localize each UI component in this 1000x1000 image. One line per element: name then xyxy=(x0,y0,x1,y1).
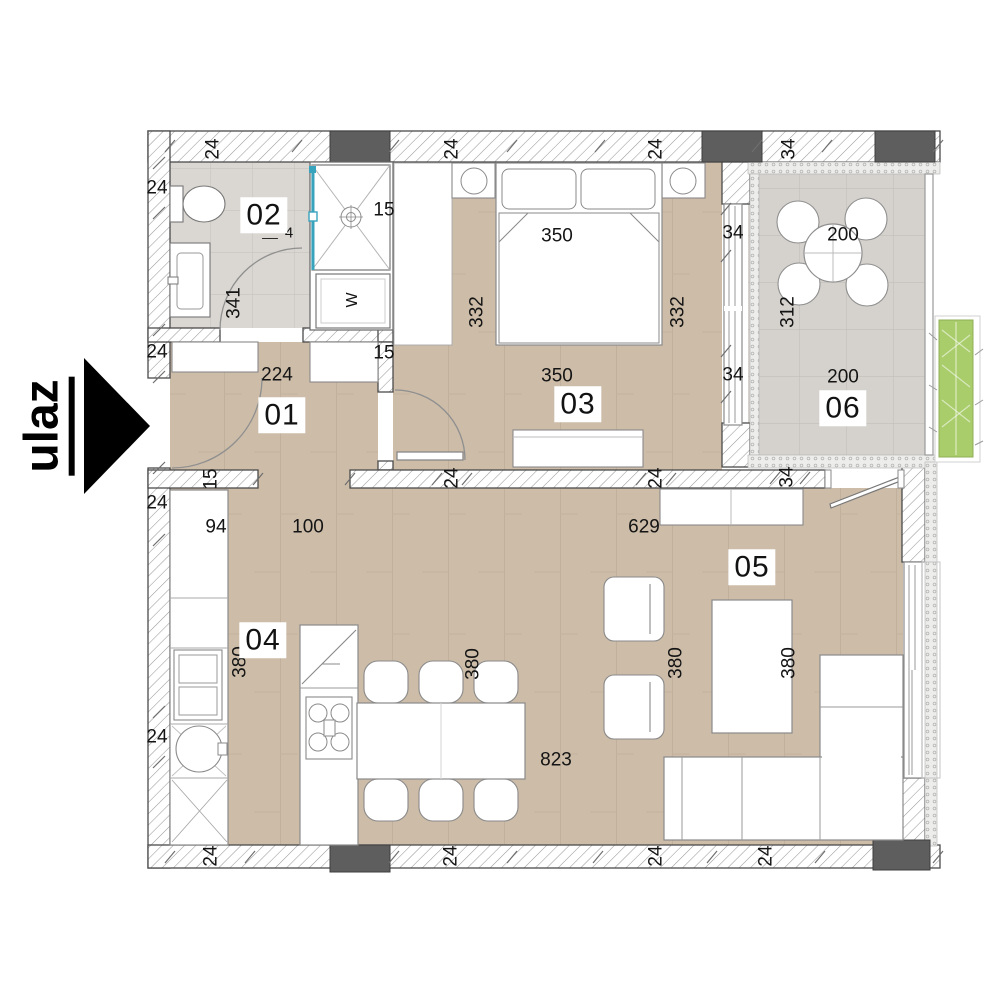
wall-right-lower xyxy=(902,778,925,845)
entrance-label: ulaz xyxy=(19,376,75,475)
dining-set xyxy=(357,661,525,821)
pillar-top-1 xyxy=(330,131,390,162)
fridge xyxy=(174,650,222,720)
bedroom-door-leaf xyxy=(397,452,463,460)
lamp-right xyxy=(670,168,696,194)
floor-plan-drawing xyxy=(0,0,1000,1000)
bedroom-terrace-window xyxy=(724,204,742,425)
stove xyxy=(306,697,352,759)
wall-bigroom-top-left xyxy=(148,470,258,488)
wall-left-lower xyxy=(148,468,170,868)
pillar-bottom-2 xyxy=(873,840,930,870)
wall-right-upper xyxy=(902,462,925,562)
lamp-left xyxy=(461,168,487,194)
kitchen-island xyxy=(300,625,358,845)
sink-vanity xyxy=(168,243,210,317)
double-bed xyxy=(496,163,662,345)
wall-bedroom-terrace-bottom xyxy=(722,423,750,467)
wall-bigroom-top-main xyxy=(350,470,825,488)
wall-hall-bedroom-upper xyxy=(378,342,393,392)
terrace-door-frame-left xyxy=(825,470,831,488)
wall-bedroom-terrace-top xyxy=(722,162,750,204)
terrace-door-frame-right xyxy=(898,470,904,488)
passage-floor xyxy=(258,470,350,488)
hall-cabinet-left xyxy=(172,342,258,372)
washing-machine xyxy=(316,274,390,328)
pillar-bottom-1 xyxy=(330,845,390,872)
sideboard xyxy=(660,489,803,525)
pillar-top-3 xyxy=(875,131,935,162)
wall-hall-bedroom-lower xyxy=(378,461,393,470)
floor-plan-page: 24242434242424242424242434115__422415153… xyxy=(0,0,1000,1000)
wall-bottom xyxy=(148,845,940,868)
planter xyxy=(929,316,983,462)
entrance-label-wrap: ulaz xyxy=(8,340,86,512)
shower xyxy=(312,165,390,270)
hall-cabinet-right xyxy=(310,342,378,382)
terrace-table xyxy=(804,224,862,282)
wardrobe xyxy=(513,430,643,467)
terrace-rail xyxy=(925,174,933,455)
coffee-table xyxy=(712,600,792,733)
wall-top xyxy=(148,131,940,162)
pillar-top-2 xyxy=(702,131,762,162)
terrace-floor xyxy=(748,174,928,455)
bedroom-closet xyxy=(394,163,452,345)
entrance-arrow-icon xyxy=(84,358,150,494)
toilet xyxy=(170,186,225,222)
